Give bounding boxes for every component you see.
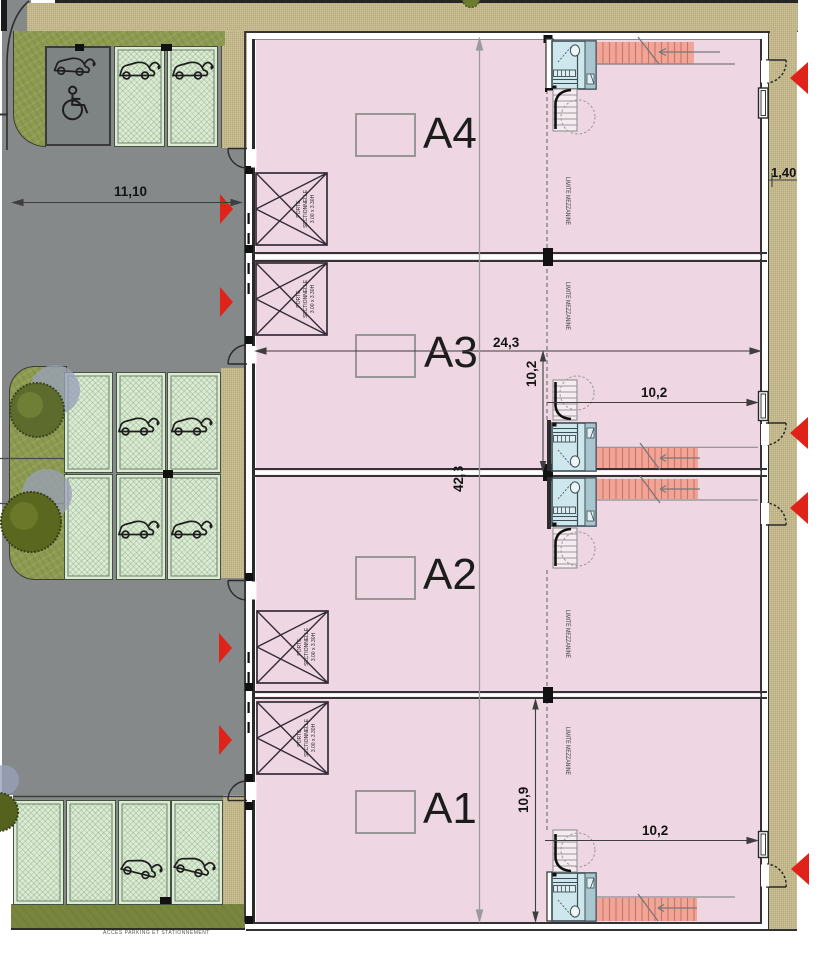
- svg-text:SECTIONNELLE: SECTIONNELLE: [304, 718, 310, 757]
- svg-text:SECTIONNELLE: SECTIONNELLE: [303, 189, 309, 228]
- svg-text:3.00 x 3.30H: 3.00 x 3.30H: [310, 284, 316, 313]
- svg-text:PORTE: PORTE: [297, 638, 303, 656]
- svg-text:LIMITE MEZZANINE: LIMITE MEZZANINE: [564, 177, 570, 225]
- svg-text:3.00 x 3.30H: 3.00 x 3.30H: [310, 194, 316, 223]
- svg-text:PORTE: PORTE: [296, 200, 302, 218]
- svg-text:PORTE: PORTE: [296, 290, 302, 308]
- svg-text:LIMITE MEZZANINE: LIMITE MEZZANINE: [564, 282, 570, 330]
- svg-text:SECTIONNELLE: SECTIONNELLE: [304, 627, 310, 666]
- svg-text:SECTIONNELLE: SECTIONNELLE: [303, 279, 309, 318]
- svg-text:3.00 x 3.30H: 3.00 x 3.30H: [311, 632, 317, 661]
- svg-text:LIMITE MEZZANINE: LIMITE MEZZANINE: [564, 610, 570, 658]
- svg-text:3.00 x 3.30H: 3.00 x 3.30H: [311, 723, 317, 752]
- svg-text:LIMITE MEZZANINE: LIMITE MEZZANINE: [564, 727, 570, 775]
- svg-text:PORTE: PORTE: [297, 729, 303, 747]
